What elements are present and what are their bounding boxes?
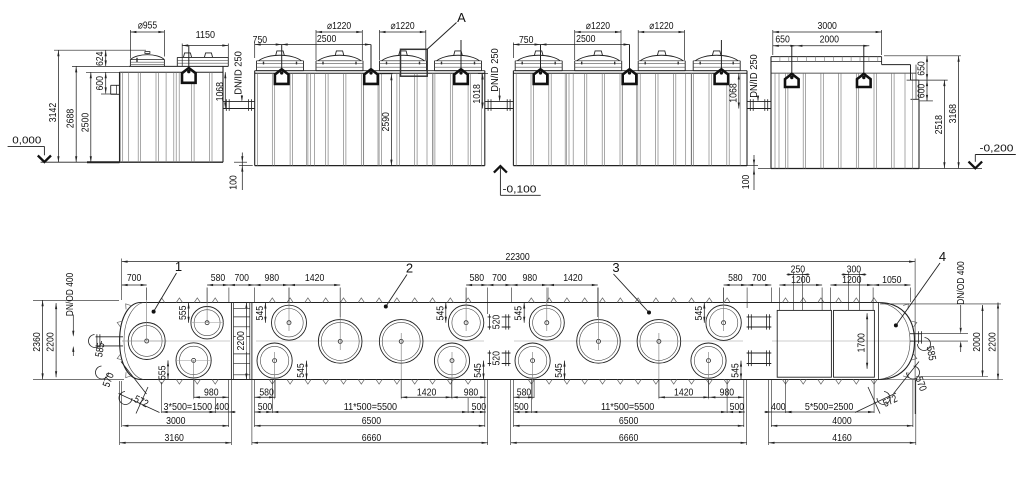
svg-text:3160: 3160	[165, 432, 185, 444]
svg-text:3168: 3168	[947, 104, 959, 124]
svg-text:6660: 6660	[362, 432, 382, 444]
svg-text:2688: 2688	[65, 109, 77, 129]
svg-text:500: 500	[730, 401, 745, 413]
svg-text:2360: 2360	[31, 332, 43, 352]
svg-text:980: 980	[265, 272, 280, 284]
svg-text:1420: 1420	[305, 272, 325, 284]
svg-text:1420: 1420	[563, 272, 583, 284]
svg-text:2200: 2200	[987, 332, 999, 352]
svg-text:DN/ID 250: DN/ID 250	[489, 48, 501, 92]
svg-text:22300: 22300	[506, 251, 530, 263]
svg-text:650: 650	[775, 34, 790, 46]
svg-text:500: 500	[472, 401, 487, 413]
svg-text:580: 580	[259, 386, 274, 398]
svg-text:4000: 4000	[832, 415, 852, 427]
svg-text:2500: 2500	[317, 33, 337, 45]
svg-text:700: 700	[492, 272, 507, 284]
svg-text:980: 980	[464, 386, 479, 398]
svg-text:A: A	[457, 10, 466, 25]
svg-text:2518: 2518	[933, 115, 945, 135]
svg-text:2000: 2000	[971, 332, 983, 352]
svg-text:3*500=1500: 3*500=1500	[164, 401, 213, 413]
svg-text:400: 400	[771, 401, 786, 413]
svg-text:1018: 1018	[471, 84, 483, 104]
svg-text:1050: 1050	[882, 274, 902, 286]
svg-text:1700: 1700	[856, 333, 868, 353]
svg-text:650: 650	[916, 61, 928, 76]
svg-text:555: 555	[177, 305, 189, 320]
svg-text:2: 2	[406, 261, 413, 276]
svg-text:2200: 2200	[45, 332, 57, 352]
svg-text:545: 545	[472, 363, 484, 378]
svg-text:3: 3	[612, 260, 619, 275]
svg-text:-0,200: -0,200	[980, 142, 1014, 154]
svg-text:545: 545	[553, 363, 565, 378]
svg-text:0,000: 0,000	[12, 134, 41, 146]
svg-text:2000: 2000	[820, 34, 840, 46]
svg-text:⌀1220: ⌀1220	[391, 20, 415, 32]
svg-text:11*500=5500: 11*500=5500	[601, 401, 654, 413]
svg-text:580: 580	[211, 272, 226, 284]
svg-text:520: 520	[490, 351, 502, 366]
svg-text:2200: 2200	[235, 331, 247, 351]
svg-text:5*500=2500: 5*500=2500	[805, 401, 854, 413]
svg-text:700: 700	[127, 272, 142, 284]
svg-text:580: 580	[728, 272, 743, 284]
svg-text:580: 580	[517, 386, 532, 398]
svg-text:545: 545	[295, 363, 307, 378]
svg-text:100: 100	[740, 175, 752, 190]
svg-text:6500: 6500	[619, 415, 639, 427]
svg-text:700: 700	[752, 272, 767, 284]
svg-text:700: 700	[234, 272, 249, 284]
svg-text:⌀1220: ⌀1220	[586, 20, 610, 32]
svg-text:545: 545	[254, 306, 266, 321]
svg-text:⌀955: ⌀955	[138, 20, 158, 32]
svg-text:624: 624	[94, 51, 106, 66]
svg-text:3000: 3000	[818, 20, 838, 32]
svg-text:DN/OD 400: DN/OD 400	[64, 273, 76, 317]
svg-text:⌀1220: ⌀1220	[649, 20, 673, 32]
svg-text:520: 520	[490, 315, 502, 330]
svg-text:3000: 3000	[166, 415, 186, 427]
svg-text:1200: 1200	[791, 274, 811, 286]
svg-text:600: 600	[94, 76, 106, 91]
svg-text:⌀1220: ⌀1220	[327, 20, 351, 32]
svg-text:11*500=5500: 11*500=5500	[344, 401, 397, 413]
svg-text:1420: 1420	[674, 386, 694, 398]
svg-text:DN/ID 250: DN/ID 250	[748, 54, 760, 98]
svg-text:4: 4	[939, 249, 946, 264]
svg-text:4160: 4160	[832, 432, 852, 444]
svg-text:1420: 1420	[417, 386, 437, 398]
svg-text:2500: 2500	[576, 33, 596, 45]
svg-text:1068: 1068	[727, 83, 739, 103]
svg-text:-0,100: -0,100	[503, 183, 537, 195]
svg-text:545: 545	[513, 306, 525, 321]
svg-text:1150: 1150	[196, 29, 216, 41]
svg-text:500: 500	[514, 401, 529, 413]
svg-text:DN/ID 250: DN/ID 250	[232, 51, 244, 95]
svg-text:DN/OD 400: DN/OD 400	[955, 261, 967, 305]
svg-text:600: 600	[916, 84, 928, 99]
svg-text:980: 980	[204, 386, 219, 398]
svg-text:750: 750	[519, 34, 534, 46]
svg-text:585: 585	[924, 345, 938, 361]
svg-text:555: 555	[157, 365, 169, 380]
svg-text:545: 545	[730, 363, 742, 378]
svg-text:1068: 1068	[214, 82, 226, 102]
svg-text:980: 980	[523, 272, 538, 284]
svg-text:2500: 2500	[79, 113, 91, 133]
svg-text:400: 400	[215, 401, 230, 413]
svg-text:545: 545	[693, 306, 705, 321]
svg-text:3142: 3142	[47, 103, 59, 123]
svg-text:100: 100	[228, 175, 240, 190]
svg-text:580: 580	[470, 272, 485, 284]
svg-text:6660: 6660	[619, 432, 639, 444]
svg-text:500: 500	[258, 401, 273, 413]
svg-text:6500: 6500	[362, 415, 382, 427]
svg-text:2590: 2590	[380, 112, 392, 132]
svg-text:545: 545	[434, 306, 446, 321]
svg-text:1200: 1200	[842, 274, 862, 286]
